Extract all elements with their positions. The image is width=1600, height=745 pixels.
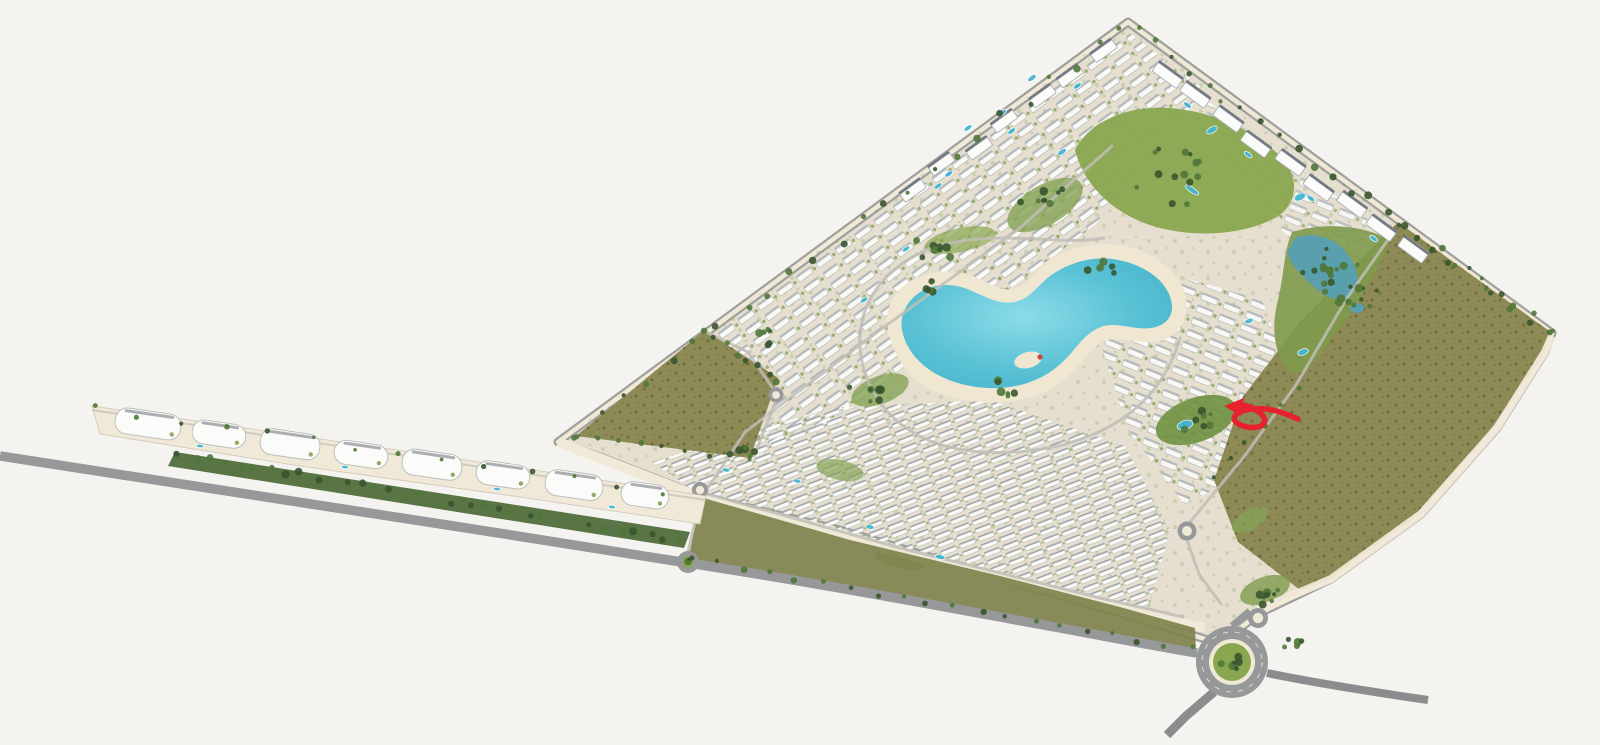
tree xyxy=(622,393,626,397)
tree xyxy=(1324,247,1328,251)
tree xyxy=(1294,643,1300,649)
tree xyxy=(727,451,734,458)
tree xyxy=(616,438,621,443)
tree xyxy=(1484,285,1489,290)
tree xyxy=(847,385,852,390)
tree xyxy=(468,502,474,508)
tree xyxy=(765,342,772,349)
tree xyxy=(416,491,421,496)
tree xyxy=(1200,423,1207,430)
tree xyxy=(821,579,826,584)
tree xyxy=(496,505,502,511)
tree xyxy=(1355,284,1363,292)
tree xyxy=(134,415,139,420)
tree xyxy=(1170,55,1174,59)
tree xyxy=(265,428,270,433)
tree xyxy=(950,603,955,608)
tree xyxy=(715,559,719,563)
tree xyxy=(1527,320,1533,326)
tree xyxy=(220,459,227,466)
tree xyxy=(1264,592,1270,598)
tree xyxy=(1322,289,1328,295)
tree xyxy=(1229,456,1233,460)
tree xyxy=(1181,426,1189,434)
tree xyxy=(725,340,730,345)
tree xyxy=(481,464,486,469)
tree xyxy=(249,465,255,471)
tree xyxy=(574,434,579,439)
tree xyxy=(922,601,928,607)
tree xyxy=(1375,288,1379,292)
masterplan-svg xyxy=(0,0,1600,745)
tree xyxy=(556,515,561,520)
tree xyxy=(743,358,749,364)
tree xyxy=(1042,198,1047,203)
tree xyxy=(173,451,179,457)
tree xyxy=(849,585,854,590)
tree xyxy=(902,594,906,598)
tree xyxy=(1232,660,1237,665)
tree xyxy=(1286,637,1291,642)
tree xyxy=(324,476,331,483)
tree xyxy=(572,474,576,478)
tree xyxy=(537,513,545,521)
tree xyxy=(1397,223,1402,228)
tree xyxy=(629,527,637,535)
tree xyxy=(507,508,513,514)
tree xyxy=(919,254,925,260)
tree xyxy=(207,454,214,461)
tree xyxy=(1169,200,1176,207)
tree xyxy=(295,468,303,476)
tree xyxy=(1269,599,1274,604)
tree xyxy=(1218,660,1225,667)
tree xyxy=(659,536,666,543)
tree xyxy=(396,451,401,456)
tree xyxy=(913,237,920,244)
tree xyxy=(1439,245,1446,252)
tree xyxy=(933,167,937,171)
tree xyxy=(997,387,1006,396)
tree xyxy=(980,609,986,615)
tree xyxy=(906,191,910,195)
tree xyxy=(1192,417,1199,424)
tree xyxy=(1311,163,1319,171)
tree xyxy=(312,436,316,440)
tree xyxy=(573,518,578,523)
tree xyxy=(194,455,201,462)
tree xyxy=(996,110,1003,117)
tree xyxy=(370,484,375,489)
tree xyxy=(638,440,644,446)
tree xyxy=(1184,201,1190,207)
tree xyxy=(712,323,719,330)
tree xyxy=(1452,263,1457,268)
tree xyxy=(1401,222,1409,230)
tree xyxy=(1234,666,1239,671)
tree xyxy=(1034,619,1039,624)
tree xyxy=(743,445,748,450)
tree xyxy=(650,531,656,537)
tree xyxy=(687,560,692,565)
tree xyxy=(761,329,767,335)
tree xyxy=(1116,26,1121,31)
tree xyxy=(1355,262,1359,266)
tree xyxy=(1098,40,1103,45)
tree xyxy=(1300,270,1305,275)
tree xyxy=(316,477,323,484)
tree xyxy=(1047,75,1051,79)
tree xyxy=(1056,190,1061,195)
tree xyxy=(1334,267,1339,272)
tree xyxy=(1208,412,1212,416)
tree xyxy=(1480,276,1484,280)
tree xyxy=(973,135,981,143)
tree xyxy=(1212,475,1216,479)
tree xyxy=(1328,273,1334,279)
tree xyxy=(448,501,454,507)
tree xyxy=(841,241,848,248)
tree xyxy=(928,278,934,284)
tree xyxy=(1109,263,1115,269)
tree xyxy=(1367,304,1372,309)
tree xyxy=(735,446,743,454)
tree xyxy=(773,378,780,385)
tree xyxy=(1322,256,1326,260)
tree xyxy=(405,495,410,500)
tree xyxy=(747,305,753,311)
tree xyxy=(1134,185,1139,190)
tree xyxy=(596,436,601,441)
tree xyxy=(946,253,954,261)
tree xyxy=(1039,187,1048,196)
tree xyxy=(875,396,883,404)
tree xyxy=(1467,266,1471,270)
tree xyxy=(269,465,274,470)
tree xyxy=(614,485,619,490)
tree xyxy=(1256,591,1264,599)
tree xyxy=(179,422,183,426)
tree xyxy=(1311,268,1317,274)
tree xyxy=(1345,298,1351,304)
tree xyxy=(880,200,887,207)
tree xyxy=(876,593,881,598)
tree xyxy=(1218,99,1222,103)
tree xyxy=(1017,199,1024,206)
tree xyxy=(1272,592,1276,596)
tree xyxy=(1321,280,1328,287)
tree xyxy=(683,449,687,453)
tree xyxy=(1488,291,1493,296)
tree xyxy=(711,335,716,340)
tree xyxy=(1499,291,1505,297)
tree xyxy=(281,470,289,478)
tree xyxy=(995,379,1001,385)
tree xyxy=(1006,391,1011,396)
tree xyxy=(1171,173,1178,180)
tree xyxy=(1385,209,1392,216)
beach-umbrellas xyxy=(1037,354,1042,359)
tree xyxy=(238,463,245,470)
tree xyxy=(224,424,230,430)
tree xyxy=(1299,638,1304,643)
tree xyxy=(1429,247,1436,254)
tree xyxy=(1279,403,1283,407)
tree xyxy=(1186,179,1193,186)
tree xyxy=(1328,279,1335,286)
tree xyxy=(1324,266,1328,270)
tree xyxy=(1180,171,1188,179)
tree xyxy=(385,486,392,493)
tree xyxy=(661,492,665,496)
tree xyxy=(767,372,773,378)
tree xyxy=(530,469,536,475)
tree xyxy=(1099,258,1107,266)
tree xyxy=(586,523,591,528)
tree xyxy=(676,538,681,543)
tree xyxy=(659,444,663,448)
tree xyxy=(93,403,98,408)
tree xyxy=(791,577,798,584)
tree xyxy=(1156,147,1161,152)
tree xyxy=(1085,629,1091,635)
tree xyxy=(1206,422,1214,430)
tree xyxy=(619,528,627,536)
tree xyxy=(1073,65,1080,72)
tree xyxy=(741,566,748,573)
tree xyxy=(861,214,866,219)
tree xyxy=(1258,118,1264,124)
tree xyxy=(1445,260,1451,266)
tree xyxy=(1110,631,1114,635)
tree xyxy=(528,513,534,519)
tree xyxy=(754,362,760,368)
tree xyxy=(1208,83,1213,88)
tree xyxy=(1348,285,1352,289)
tree xyxy=(1364,191,1372,199)
tree xyxy=(1111,270,1117,276)
tree xyxy=(359,479,366,486)
tree xyxy=(1011,389,1018,396)
tree xyxy=(1351,302,1356,307)
masterplan-render xyxy=(0,0,1600,745)
tree xyxy=(1337,294,1346,303)
tree xyxy=(1029,102,1034,107)
tree xyxy=(1186,71,1191,76)
tree xyxy=(1277,132,1281,136)
tree xyxy=(925,287,931,293)
tree xyxy=(689,338,695,344)
tree xyxy=(766,327,771,332)
tree xyxy=(643,381,649,387)
tree xyxy=(1133,639,1139,645)
tree xyxy=(785,268,792,275)
tree xyxy=(1238,105,1242,109)
tree xyxy=(701,328,707,334)
tree xyxy=(707,454,712,459)
tree xyxy=(440,458,444,462)
tree xyxy=(1531,310,1536,315)
tree xyxy=(1057,623,1061,627)
tree xyxy=(748,453,753,458)
tree xyxy=(600,410,605,415)
tree xyxy=(345,479,351,485)
tree xyxy=(600,525,608,533)
tree xyxy=(1137,25,1142,30)
tree xyxy=(1329,173,1336,180)
tree xyxy=(1282,645,1287,650)
tree xyxy=(734,352,740,358)
tree xyxy=(671,357,678,364)
tree xyxy=(764,293,770,299)
tree xyxy=(937,248,942,253)
tree xyxy=(868,388,872,392)
tree xyxy=(479,501,487,509)
tree xyxy=(1547,329,1553,335)
tree xyxy=(1036,199,1041,204)
tree xyxy=(1201,413,1207,419)
tree xyxy=(1194,173,1201,180)
tree xyxy=(1295,145,1303,153)
tree xyxy=(1275,588,1280,593)
tree xyxy=(767,569,772,574)
tree xyxy=(1359,297,1363,301)
tree xyxy=(1340,262,1348,270)
tree xyxy=(1084,266,1092,274)
tree xyxy=(1242,440,1247,445)
tree xyxy=(353,448,357,452)
tree xyxy=(1155,170,1163,178)
tree xyxy=(1297,386,1302,391)
tree xyxy=(1046,200,1053,207)
tree xyxy=(1182,149,1189,156)
tree xyxy=(1192,159,1200,167)
tree xyxy=(809,257,816,264)
tree xyxy=(1414,236,1419,241)
tree xyxy=(1510,302,1516,308)
tree xyxy=(942,243,950,251)
tree xyxy=(1161,644,1166,649)
tree xyxy=(954,154,960,160)
tree xyxy=(1348,190,1355,197)
tree xyxy=(1003,614,1007,618)
tree xyxy=(868,399,873,404)
tree xyxy=(1191,644,1196,649)
tree xyxy=(1153,37,1159,43)
tree xyxy=(432,495,437,500)
tree xyxy=(1259,601,1267,609)
tree xyxy=(876,385,885,394)
